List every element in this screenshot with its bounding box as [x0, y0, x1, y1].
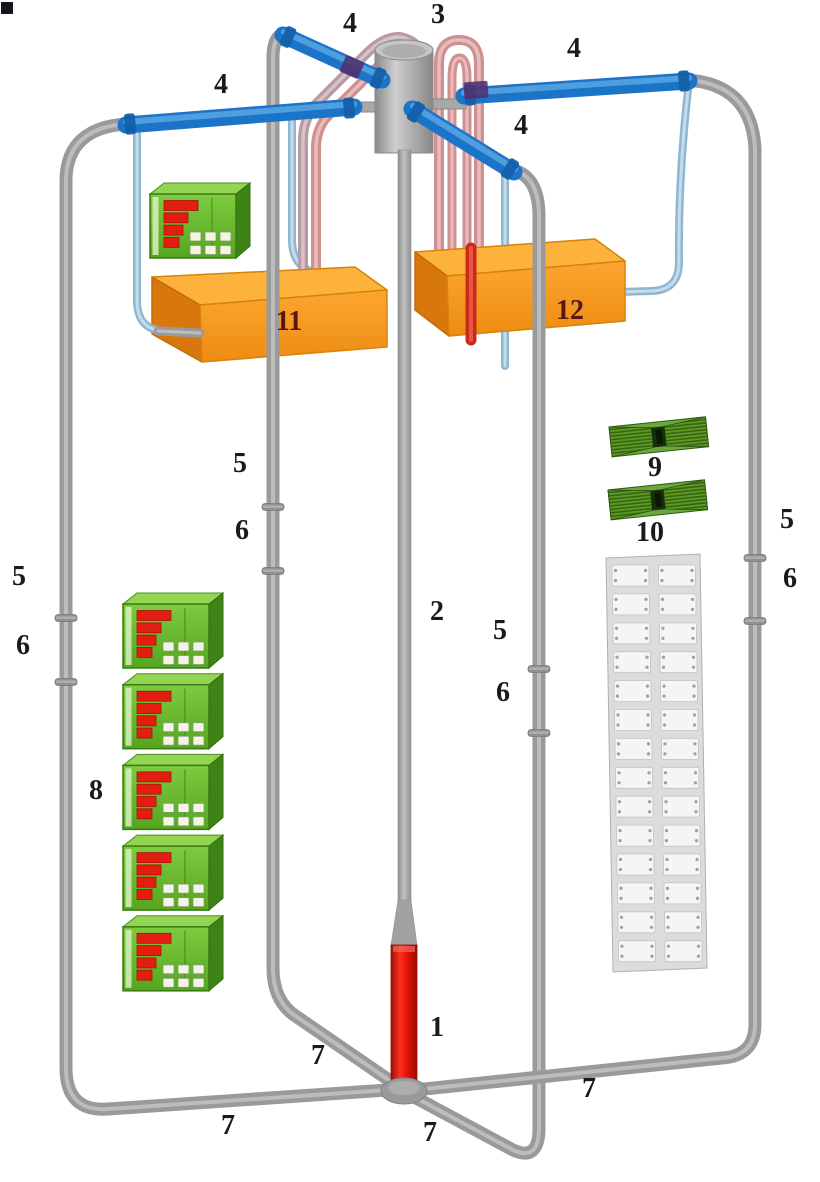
terminal-screw: [614, 569, 617, 572]
terminal-screw: [665, 839, 668, 842]
terminal-screw: [697, 945, 700, 948]
terminal-screw: [693, 723, 696, 726]
terminal-block: [665, 912, 702, 933]
controller-stack-item-3: [123, 754, 223, 829]
terminal-screw: [644, 598, 647, 601]
terminal-screw: [618, 839, 621, 842]
terminal-screw: [695, 868, 698, 871]
tube-taper: [391, 900, 417, 945]
terminal-screw: [615, 627, 618, 630]
terminal-screw: [665, 858, 668, 861]
terminal-screw: [665, 868, 668, 871]
terminal-screw: [661, 608, 664, 611]
terminal-block: [615, 710, 652, 731]
terminal-screw: [694, 800, 697, 803]
terminal-screw: [691, 598, 694, 601]
terminal-panel: [606, 554, 707, 972]
evaporator-section: [391, 945, 417, 1095]
terminal-screw: [648, 800, 651, 803]
terminal-screw: [615, 666, 618, 669]
terminal-screw: [616, 695, 619, 698]
terminal-block: [613, 623, 650, 644]
terminal-screw: [696, 916, 699, 919]
terminal-block: [659, 565, 696, 586]
terminal-screw: [693, 752, 696, 755]
terminal-screw: [663, 723, 666, 726]
terminal-block: [660, 652, 697, 673]
terminal-screw: [620, 926, 623, 929]
terminal-screw: [618, 800, 621, 803]
terminal-screw: [691, 637, 694, 640]
terminal-screw: [620, 955, 623, 958]
terminal-screw: [664, 810, 667, 813]
terminal-screw: [645, 656, 648, 659]
terminal-screw: [693, 742, 696, 745]
terminal-screw: [647, 742, 650, 745]
terminal-screw: [649, 868, 652, 871]
terminal-screw: [650, 916, 653, 919]
terminal-block: [614, 652, 651, 673]
terminal-screw: [615, 637, 618, 640]
terminal-screw: [618, 829, 621, 832]
terminal-block: [616, 767, 653, 788]
terminal-screw: [650, 945, 653, 948]
terminal-screw: [644, 579, 647, 582]
terminal-screw: [646, 695, 649, 698]
terminal-screw: [694, 781, 697, 784]
terminal-screw: [662, 695, 665, 698]
terminal-screw: [697, 955, 700, 958]
terminal-block: [613, 594, 650, 615]
terminal-screw: [662, 685, 665, 688]
bottom-junction: [381, 1078, 427, 1104]
terminal-screw: [614, 598, 617, 601]
terminal-screw: [616, 685, 619, 688]
terminal-screw: [666, 897, 669, 900]
terminal-screw: [692, 666, 695, 669]
terminal-screw: [649, 897, 652, 900]
terminal-screw: [695, 839, 698, 842]
terminal-screw: [648, 829, 651, 832]
terminal-screw: [664, 800, 667, 803]
controller-top-left: [150, 183, 250, 258]
controller-stack-item-4: [123, 835, 223, 910]
terminal-screw: [646, 723, 649, 726]
terminal-screw: [693, 713, 696, 716]
terminal-screw: [616, 723, 619, 726]
terminal-screw: [646, 685, 649, 688]
terminal-block: [663, 796, 700, 817]
terminal-screw: [650, 926, 653, 929]
terminal-screw: [690, 569, 693, 572]
terminal-screw: [646, 713, 649, 716]
terminal-screw: [692, 695, 695, 698]
terminal-screw: [645, 666, 648, 669]
terminal-block: [662, 738, 699, 759]
terminal-screw: [647, 781, 650, 784]
terminal-block: [618, 883, 655, 904]
fin-device-9: [609, 417, 709, 457]
terminal-screw: [667, 955, 670, 958]
terminal-block: [663, 825, 700, 846]
terminal-block: [615, 738, 652, 759]
terminal-block: [665, 941, 702, 962]
controller-stack: [123, 593, 223, 991]
controller-stack-item-1: [123, 593, 223, 668]
terminal-block: [618, 912, 655, 933]
terminal-screw: [645, 627, 648, 630]
terminal-block: [617, 854, 654, 875]
thermostatic-bath-12: [415, 239, 625, 336]
terminal-screw: [661, 627, 664, 630]
terminal-screw: [692, 685, 695, 688]
terminal-screw: [644, 569, 647, 572]
terminal-screw: [662, 666, 665, 669]
terminal-block: [612, 565, 649, 586]
terminal-screw: [661, 598, 664, 601]
terminal-screw: [692, 656, 695, 659]
terminal-screw: [666, 926, 669, 929]
terminal-screw: [617, 771, 620, 774]
terminal-screw: [648, 839, 651, 842]
apparatus-diagram: 434445656256569108111217777: [0, 0, 820, 1182]
terminal-screw: [662, 656, 665, 659]
terminal-screw: [618, 810, 621, 813]
terminal-block: [614, 681, 651, 702]
terminal-screw: [665, 829, 668, 832]
controller-stack-item-2: [123, 674, 223, 749]
terminal-screw: [617, 752, 620, 755]
terminal-screw: [661, 637, 664, 640]
terminal-screw: [615, 656, 618, 659]
terminal-screw: [663, 713, 666, 716]
controller-stack-item-5: [123, 916, 223, 991]
terminal-block: [616, 796, 653, 817]
terminal-screw: [620, 916, 623, 919]
terminal-screw: [614, 579, 617, 582]
apparatus-drawing: [0, 0, 820, 1182]
terminal-block: [660, 623, 697, 644]
terminal-screw: [691, 627, 694, 630]
terminal-screw: [644, 608, 647, 611]
terminal-block: [661, 681, 698, 702]
terminal-screw: [619, 858, 622, 861]
terminal-screw: [696, 887, 699, 890]
terminal-screw: [696, 926, 699, 929]
terminal-screw: [649, 858, 652, 861]
terminal-block: [617, 825, 654, 846]
terminal-screw: [619, 887, 622, 890]
terminal-block: [664, 883, 701, 904]
terminal-block: [661, 710, 698, 731]
terminal-screw: [694, 810, 697, 813]
terminal-screw: [660, 579, 663, 582]
terminal-screw: [647, 752, 650, 755]
terminal-block: [662, 767, 699, 788]
terminal-screw: [645, 637, 648, 640]
terminal-screw: [617, 742, 620, 745]
terminal-screw: [620, 945, 623, 948]
terminal-screw: [663, 742, 666, 745]
terminal-screw: [664, 771, 667, 774]
terminal-screw: [667, 945, 670, 948]
terminal-screw: [614, 608, 617, 611]
terminal-screw: [660, 569, 663, 572]
terminal-block: [619, 941, 656, 962]
terminal-screw: [650, 955, 653, 958]
terminal-screw: [616, 713, 619, 716]
terminal-screw: [694, 771, 697, 774]
terminal-screw: [695, 858, 698, 861]
terminal-screw: [619, 897, 622, 900]
terminal-screw: [666, 887, 669, 890]
terminal-screw: [696, 897, 699, 900]
terminal-screw: [617, 781, 620, 784]
terminal-screw: [666, 916, 669, 919]
terminal-screw: [691, 608, 694, 611]
fin-device-10: [608, 480, 708, 520]
terminal-block: [664, 854, 701, 875]
terminal-block: [659, 594, 696, 615]
central-tube: [391, 150, 417, 945]
terminal-screw: [663, 752, 666, 755]
terminal-screw: [664, 781, 667, 784]
terminal-screw: [649, 887, 652, 890]
terminal-screw: [619, 868, 622, 871]
terminal-screw: [695, 829, 698, 832]
terminal-screw: [690, 579, 693, 582]
terminal-screw: [647, 771, 650, 774]
terminal-screw: [648, 810, 651, 813]
